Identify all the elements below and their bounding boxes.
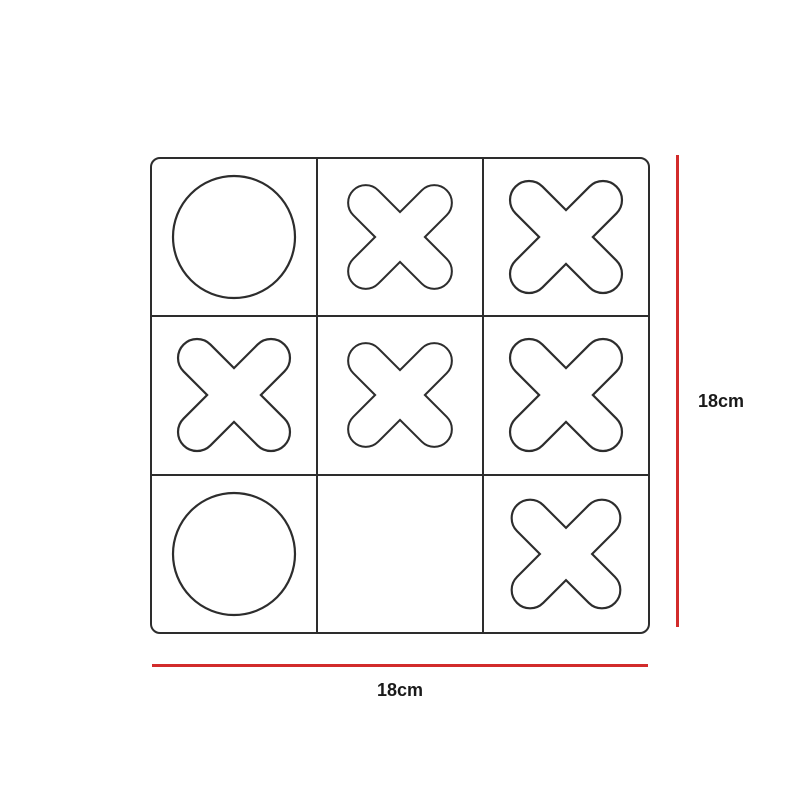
- x-mark-icon: [498, 169, 634, 305]
- x-mark-icon: [498, 327, 634, 463]
- x-mark-icon: [166, 327, 302, 463]
- x-mark-icon: [337, 332, 463, 458]
- board-cell-r1c3: [484, 159, 648, 315]
- board-cell-r3c3: [484, 476, 648, 632]
- board-cell-r2c1: [152, 317, 316, 473]
- board-cell-r3c1: [152, 476, 316, 632]
- board-cell-r2c2: [318, 317, 482, 473]
- width-dimension-label: 18cm: [355, 681, 445, 699]
- board-cell-r3c2: [318, 476, 482, 632]
- tic-tac-toe-board: [150, 157, 650, 634]
- board-cell-r2c3: [484, 317, 648, 473]
- height-dimension-line: [676, 155, 679, 627]
- height-dimension-label: 18cm: [698, 392, 744, 410]
- board-cell-r1c2: [318, 159, 482, 315]
- board-cell-r1c1: [152, 159, 316, 315]
- diagram-canvas: 18cm 18cm: [0, 0, 800, 800]
- o-mark-icon: [166, 169, 302, 305]
- x-mark-icon: [337, 174, 463, 300]
- x-mark-icon: [500, 488, 632, 620]
- width-dimension-line: [152, 664, 648, 667]
- o-mark-icon: [166, 486, 302, 622]
